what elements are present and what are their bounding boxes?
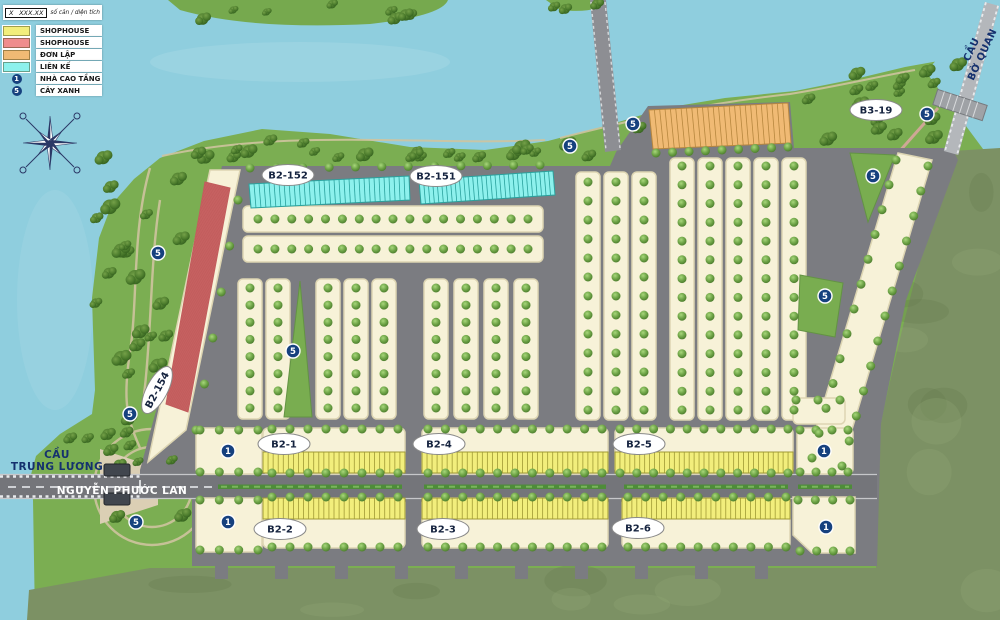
tree: [324, 386, 333, 395]
tree: [641, 543, 650, 552]
tree: [852, 412, 861, 421]
tree: [274, 404, 283, 413]
green-area-marker: 5: [920, 107, 934, 121]
tree: [473, 245, 482, 254]
tree: [762, 312, 771, 321]
tree: [166, 459, 172, 465]
road-label-text: CẦU: [44, 447, 70, 461]
road-stub: [515, 562, 528, 579]
tree: [456, 245, 465, 254]
tree: [128, 368, 135, 375]
tree: [340, 425, 349, 434]
tree: [196, 468, 205, 477]
tree: [909, 212, 918, 221]
tree: [144, 335, 150, 341]
tree: [226, 155, 233, 162]
tree: [706, 162, 715, 171]
tree: [137, 338, 146, 347]
tree: [246, 318, 255, 327]
road-stub: [395, 562, 408, 579]
tree: [584, 406, 593, 415]
tree: [246, 352, 255, 361]
tree: [892, 156, 901, 165]
svg-text:5: 5: [822, 292, 828, 302]
tree: [716, 425, 725, 434]
tree: [838, 462, 847, 471]
tree: [248, 144, 257, 153]
tree: [160, 297, 169, 306]
tree: [678, 387, 687, 396]
legend-label-lien-ke: LIÊN KẾ: [36, 61, 102, 72]
tree: [762, 255, 771, 264]
tree: [332, 156, 338, 162]
tree: [706, 330, 715, 339]
tree: [137, 457, 143, 463]
tree: [324, 301, 333, 310]
tree: [352, 301, 361, 310]
tree: [790, 312, 799, 321]
water-highlight: [150, 42, 450, 82]
tree: [652, 149, 661, 158]
tree: [790, 180, 799, 189]
tree: [387, 17, 395, 25]
tree: [234, 196, 243, 205]
tree: [545, 493, 554, 502]
tree: [632, 469, 641, 478]
tree: [734, 255, 743, 264]
tree: [124, 240, 131, 247]
lot-block: [670, 158, 694, 420]
green-area-marker: 5: [286, 344, 300, 358]
tree: [262, 11, 267, 16]
block-label-text: B2-152: [268, 171, 308, 182]
tree: [782, 543, 791, 552]
block-label-text: B2-4: [426, 440, 452, 451]
tree: [827, 132, 837, 142]
tree: [706, 199, 715, 208]
tree: [364, 147, 374, 157]
legend-item-nha-cao-tang: 1NHÀ CAO TẦNG: [3, 73, 102, 84]
tree: [380, 352, 389, 361]
tree: [234, 468, 243, 477]
tree: [554, 2, 561, 9]
tree: [706, 274, 715, 283]
tree: [706, 406, 715, 415]
svg-text:5: 5: [127, 410, 133, 420]
tree: [340, 493, 349, 502]
tree: [268, 543, 277, 552]
tree: [565, 3, 572, 10]
tree: [202, 12, 211, 21]
tree: [70, 432, 78, 440]
block-label-B2-1: B2-1: [258, 434, 310, 455]
road-label-1: NGUYỄN PHƯỚC LAN: [57, 482, 188, 497]
tree: [254, 215, 263, 224]
tree: [394, 469, 403, 478]
tree: [102, 271, 110, 279]
tree: [548, 5, 554, 11]
tree: [528, 543, 537, 552]
tree: [580, 469, 589, 478]
tree: [90, 301, 97, 308]
tree: [790, 199, 799, 208]
tree: [380, 404, 389, 413]
tree: [545, 469, 554, 478]
tree: [612, 406, 621, 415]
tree: [545, 425, 554, 434]
tree: [598, 543, 607, 552]
tree: [522, 335, 531, 344]
tree: [303, 138, 310, 145]
tree: [676, 543, 685, 552]
tree: [790, 406, 799, 415]
tree: [322, 469, 331, 478]
tree: [116, 510, 125, 519]
svg-text:5: 5: [870, 172, 876, 182]
lot-block: [726, 158, 750, 420]
tree: [215, 468, 224, 477]
road-stub: [215, 562, 228, 579]
tree: [422, 245, 431, 254]
tree: [132, 329, 141, 338]
tree: [828, 468, 837, 477]
tree: [881, 312, 890, 321]
tree: [376, 469, 385, 478]
tree: [598, 425, 607, 434]
tree: [694, 543, 703, 552]
tree: [762, 349, 771, 358]
green-area-marker: 5: [563, 139, 577, 153]
tree: [270, 215, 279, 224]
legend-sample-row: X XXX.XX số căn / diện tích: [3, 5, 102, 20]
legend-label-cay-xanh: CÂY XANH: [36, 85, 102, 96]
tree: [352, 335, 361, 344]
tree: [322, 493, 331, 502]
tree: [309, 150, 315, 156]
tree: [234, 496, 243, 505]
tree: [790, 162, 799, 171]
tree: [683, 425, 692, 434]
tree: [358, 425, 367, 434]
tree: [878, 122, 887, 131]
svg-text:1: 1: [225, 518, 231, 528]
tree: [180, 231, 189, 240]
road-stub: [455, 562, 468, 579]
tree: [685, 147, 694, 156]
tree: [762, 387, 771, 396]
tree: [790, 330, 799, 339]
tree: [871, 126, 879, 134]
tree: [811, 496, 820, 505]
tree: [762, 406, 771, 415]
legend-label-nha-cao-tang: NHÀ CAO TẦNG: [36, 73, 102, 84]
tree: [849, 88, 856, 95]
block-label-B2-2: B2-2: [254, 519, 306, 540]
tree: [356, 153, 365, 162]
tree: [590, 3, 597, 10]
tree: [476, 469, 485, 478]
legend-label-don-lap: ĐƠN LẬP: [36, 49, 102, 60]
tree: [416, 148, 424, 156]
tree: [380, 284, 389, 293]
tree: [678, 180, 687, 189]
tree: [268, 425, 277, 434]
tree: [873, 337, 882, 346]
lot-block: [484, 279, 508, 419]
tree: [233, 6, 238, 11]
tree: [246, 404, 255, 413]
tree: [612, 292, 621, 301]
tree: [231, 148, 237, 154]
tree: [659, 543, 668, 552]
road-stub: [575, 562, 588, 579]
tree: [524, 245, 533, 254]
tree: [640, 197, 649, 206]
tree: [120, 431, 127, 438]
tree: [522, 386, 531, 395]
legend-label-shophouse-red: SHOPHOUSE: [36, 37, 102, 48]
tree: [228, 9, 233, 14]
tree: [845, 437, 854, 446]
tree: [432, 335, 441, 344]
tree: [304, 425, 313, 434]
tree: [234, 546, 243, 555]
tree: [706, 349, 715, 358]
tree: [734, 218, 743, 227]
legend-item-don-lap: ĐƠN LẬP: [3, 49, 102, 60]
tree: [511, 493, 520, 502]
tree: [246, 301, 255, 310]
tree: [338, 152, 345, 159]
tree: [274, 369, 283, 378]
tree: [678, 237, 687, 246]
green-area-marker: 5: [129, 515, 143, 529]
tree: [103, 185, 111, 193]
tree: [902, 73, 910, 81]
tree: [109, 198, 120, 209]
tree: [254, 468, 263, 477]
tree: [790, 237, 799, 246]
road-stub: [335, 562, 348, 579]
tree: [535, 147, 541, 153]
tree: [380, 386, 389, 395]
tree: [802, 97, 809, 104]
svg-text:1: 1: [225, 447, 231, 457]
tree: [700, 425, 709, 434]
tree: [844, 426, 853, 435]
tree: [338, 215, 347, 224]
tree: [456, 161, 465, 170]
tree: [376, 543, 385, 552]
tree: [129, 343, 137, 351]
tree: [683, 469, 692, 478]
legend-swatch-don-lap: [3, 50, 30, 60]
tree: [490, 245, 499, 254]
tree: [492, 352, 501, 361]
tree: [668, 148, 677, 157]
tree: [616, 425, 625, 434]
tree: [165, 330, 173, 338]
lot-block: [424, 279, 448, 419]
tree: [398, 13, 406, 21]
tree: [949, 62, 958, 71]
tree: [146, 209, 153, 216]
tree: [706, 218, 715, 227]
tree: [640, 292, 649, 301]
tree: [340, 543, 349, 552]
legend-marker-cay-xanh: 5: [12, 86, 22, 96]
tree: [462, 369, 471, 378]
tree: [584, 330, 593, 339]
tree: [492, 335, 501, 344]
tree: [706, 180, 715, 189]
tree: [492, 369, 501, 378]
tree: [380, 301, 389, 310]
tree: [394, 543, 403, 552]
tree: [584, 197, 593, 206]
tree: [324, 284, 333, 293]
tree: [512, 145, 521, 154]
tree: [790, 274, 799, 283]
legend: X XXX.XX số căn / diện tích SHOPHOUSESHO…: [3, 5, 102, 97]
tree: [624, 543, 633, 552]
tree: [888, 287, 897, 296]
block-label-B2-151: B2-151: [410, 166, 462, 187]
tree: [196, 496, 205, 505]
tree: [624, 493, 633, 502]
tree: [871, 81, 878, 88]
tree: [836, 396, 845, 405]
road-stub: [275, 562, 288, 579]
tree: [828, 426, 837, 435]
block-label-text: B2-1: [271, 440, 297, 451]
tree: [314, 147, 320, 153]
tree: [706, 368, 715, 377]
tree: [377, 162, 386, 171]
tree: [462, 301, 471, 310]
tree: [934, 78, 941, 85]
tree: [140, 213, 147, 220]
tree: [268, 493, 277, 502]
tree: [767, 425, 776, 434]
tree: [678, 312, 687, 321]
tree: [580, 493, 589, 502]
tree: [493, 425, 502, 434]
tree: [246, 335, 255, 344]
tree: [135, 269, 146, 280]
tree: [324, 318, 333, 327]
tree: [476, 543, 485, 552]
tree: [432, 352, 441, 361]
master-plan-screenshot: X XXX.XX số căn / diện tích SHOPHOUSESHO…: [0, 0, 1000, 620]
tree: [640, 273, 649, 282]
tree: [750, 425, 759, 434]
tree: [584, 254, 593, 263]
tree: [304, 543, 313, 552]
tree: [694, 493, 703, 502]
lot-block: [238, 279, 262, 419]
tree: [933, 130, 943, 140]
tree: [563, 543, 572, 552]
tree: [859, 387, 868, 396]
tree: [439, 245, 448, 254]
tree: [274, 386, 283, 395]
road-medians: [218, 485, 852, 490]
tree: [462, 386, 471, 395]
tree: [458, 425, 467, 434]
tree: [700, 469, 709, 478]
tree: [716, 469, 725, 478]
tree: [372, 245, 381, 254]
block-label-B2-4: B2-4: [413, 434, 465, 455]
tree: [706, 237, 715, 246]
tree: [762, 199, 771, 208]
tree: [734, 237, 743, 246]
tree: [492, 318, 501, 327]
tree: [815, 429, 824, 438]
tree: [584, 387, 593, 396]
tree: [286, 493, 295, 502]
tree: [733, 469, 742, 478]
tree: [764, 543, 773, 552]
tree: [616, 469, 625, 478]
tree: [321, 245, 330, 254]
tree: [790, 349, 799, 358]
tree: [380, 335, 389, 344]
tree: [746, 493, 755, 502]
block-label-text: B2-5: [626, 440, 652, 451]
tree: [581, 154, 588, 161]
tree: [829, 379, 838, 388]
tree: [580, 543, 589, 552]
tree: [483, 161, 492, 170]
tower-marker: 1: [221, 444, 235, 458]
tree: [794, 496, 803, 505]
lot-block: [454, 279, 478, 419]
tree: [919, 69, 928, 78]
tree: [612, 387, 621, 396]
tree: [178, 172, 187, 181]
tree: [441, 469, 450, 478]
tree: [926, 64, 935, 73]
tree: [274, 352, 283, 361]
lot-block: [344, 279, 368, 419]
tower-marker: 1: [819, 520, 833, 534]
tree: [507, 215, 516, 224]
legend-swatch-shophouse-red: [3, 38, 30, 48]
svg-text:1: 1: [823, 523, 829, 533]
tree: [173, 236, 182, 245]
tree: [122, 372, 129, 379]
tree: [612, 254, 621, 263]
tree: [325, 163, 334, 172]
water-highlight: [17, 190, 93, 410]
legend-label-shophouse-yellow: SHOPHOUSE: [36, 25, 102, 36]
tree: [358, 469, 367, 478]
tree: [352, 318, 361, 327]
tree: [376, 493, 385, 502]
tree: [711, 543, 720, 552]
tree: [718, 146, 727, 155]
tree: [511, 469, 520, 478]
tree: [924, 162, 933, 171]
tree: [678, 162, 687, 171]
tree: [522, 352, 531, 361]
tree: [678, 293, 687, 302]
tree: [355, 245, 364, 254]
tree: [706, 387, 715, 396]
tree: [81, 437, 87, 443]
